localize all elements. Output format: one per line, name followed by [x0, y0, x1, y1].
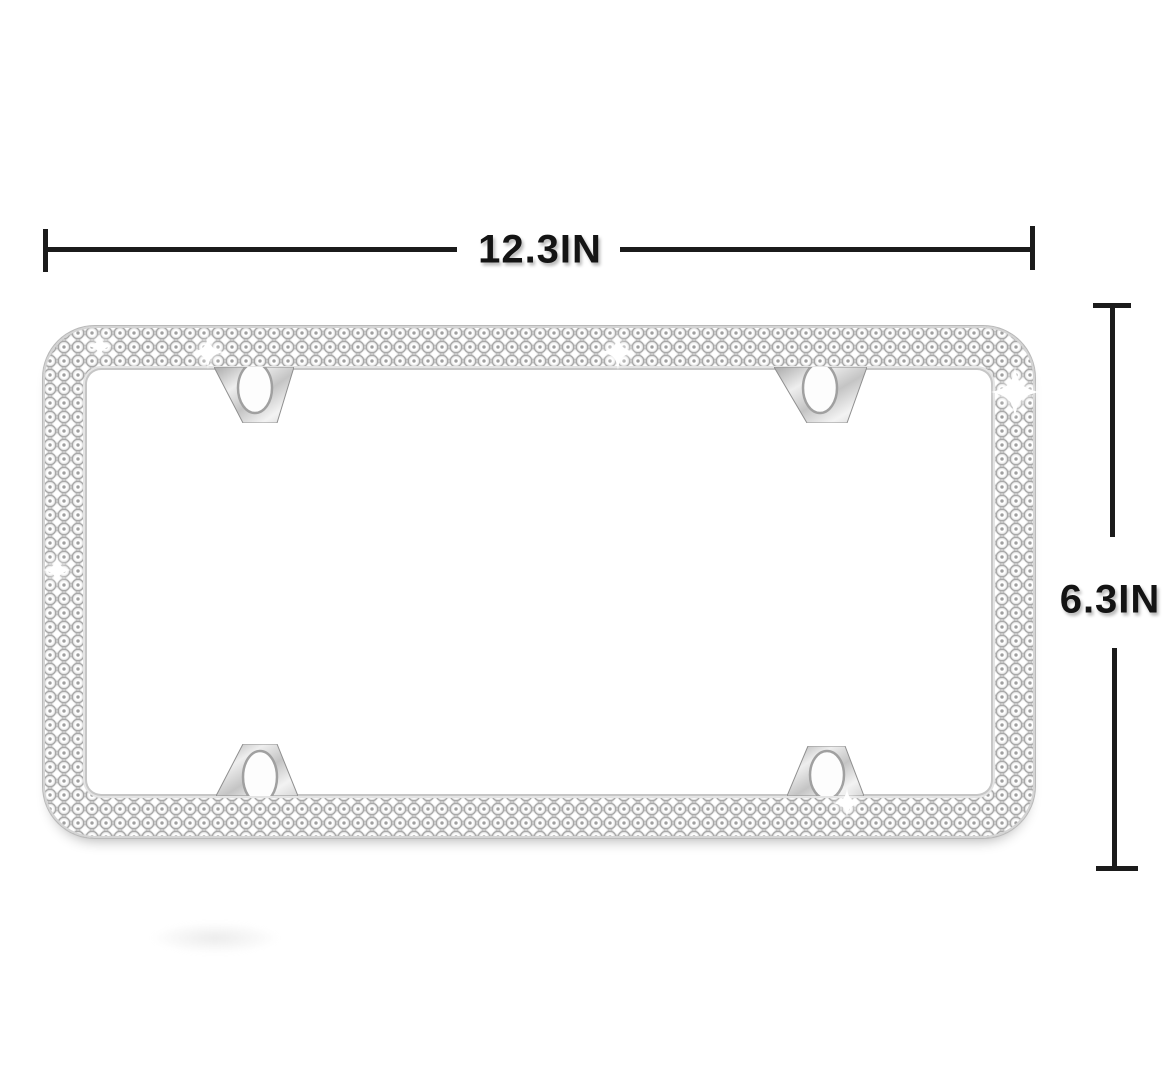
- screw-hole-bottom-left: [243, 751, 277, 796]
- frame-opening: [87, 370, 991, 794]
- height-dimension-line-top: [1110, 303, 1115, 537]
- height-dimension-label: 6.3IN: [1060, 578, 1161, 623]
- width-dimension-line-left: [43, 247, 457, 252]
- height-dimension-line-bottom: [1112, 648, 1117, 868]
- width-dimension-label: 12.3IN: [478, 228, 602, 273]
- license-plate-frame: [43, 326, 1035, 838]
- width-dimension-line-right: [620, 247, 1033, 252]
- watermark-smudge: [150, 922, 280, 954]
- height-dimension-tick-bottom: [1096, 866, 1138, 871]
- mounting-tab-bottom-right: [787, 746, 864, 796]
- mounting-tab-bottom-left: [216, 744, 298, 796]
- product-dimension-diagram: 12.3IN 6.3IN: [0, 0, 1170, 1092]
- width-dimension-tick-right: [1030, 226, 1035, 270]
- mounting-tab-top-right: [774, 367, 867, 423]
- screw-hole-top-right: [803, 367, 837, 413]
- mounting-tab-top-left: [214, 367, 294, 423]
- screw-hole-bottom-right: [810, 751, 844, 796]
- screw-hole-top-left: [238, 367, 272, 413]
